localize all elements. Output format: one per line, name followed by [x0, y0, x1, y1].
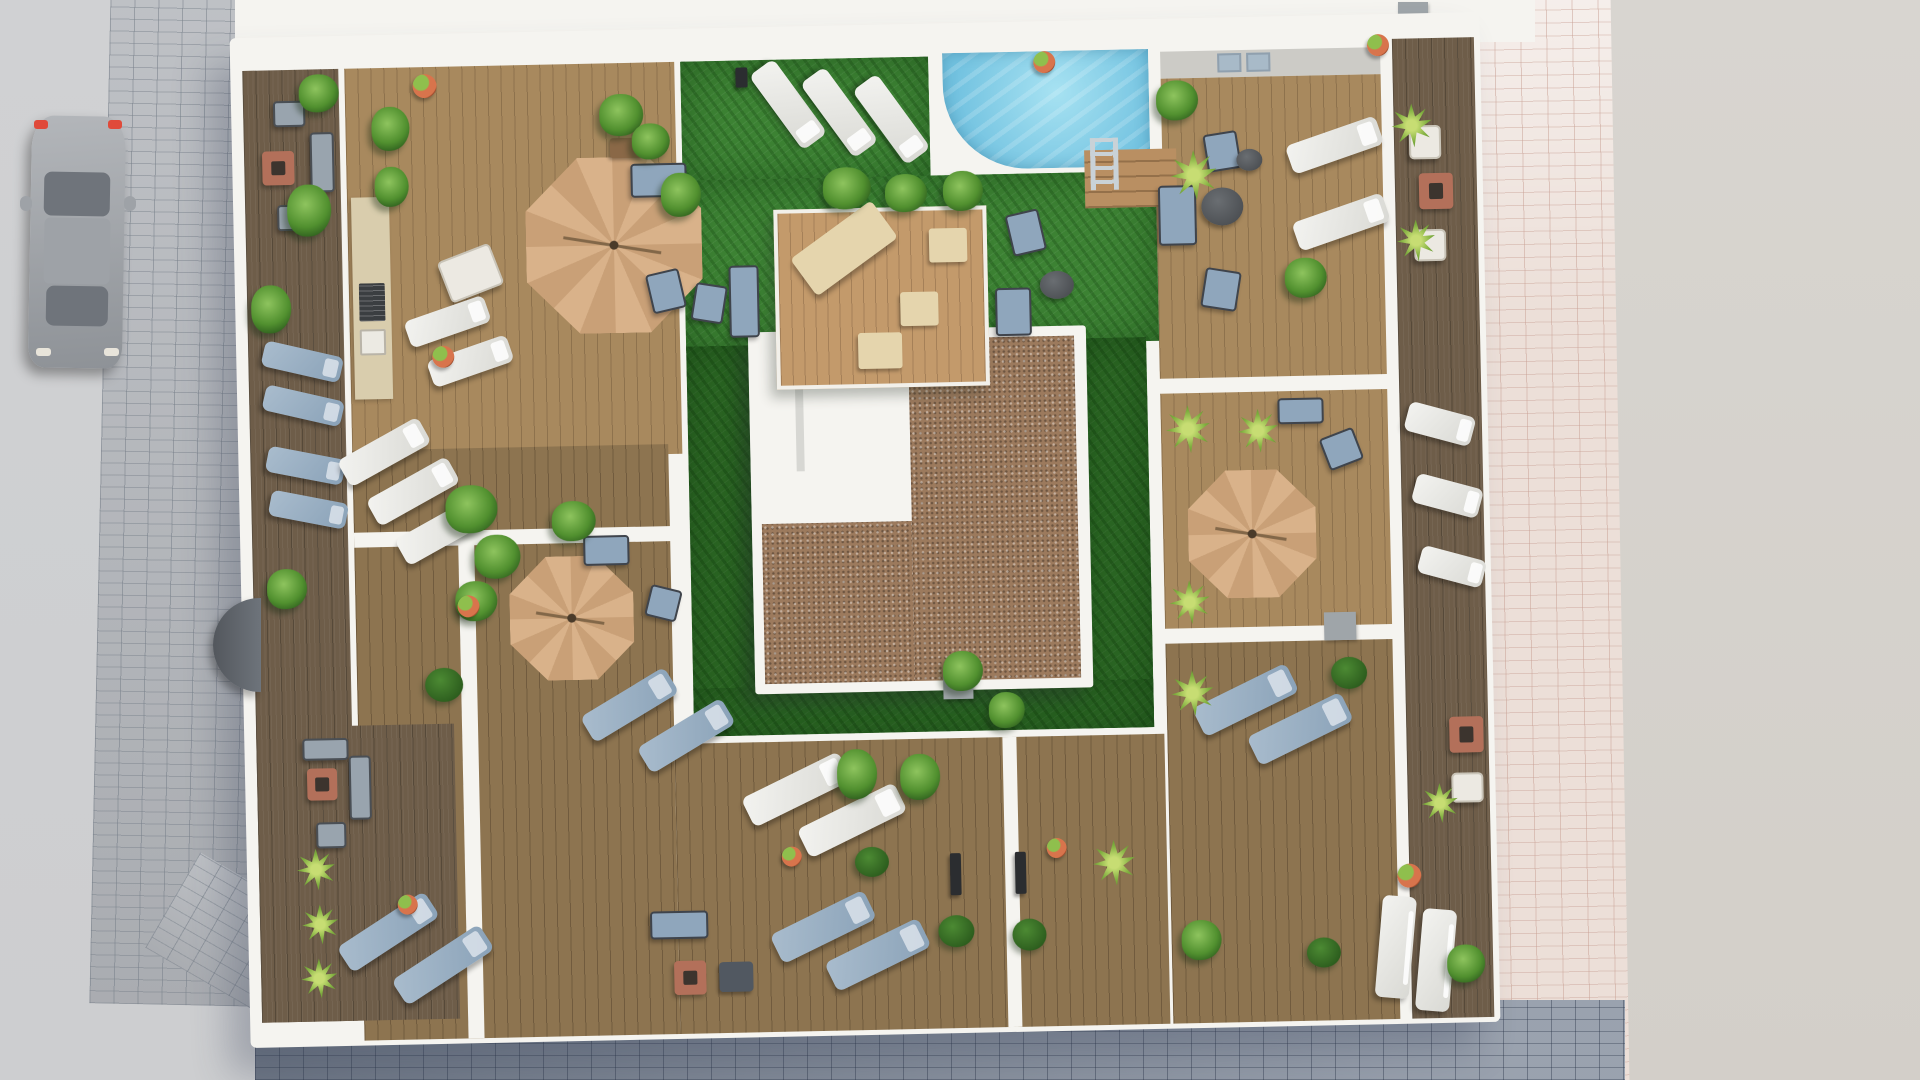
car-mirror	[20, 196, 32, 211]
chair-blue	[1202, 130, 1242, 173]
armchair-gray	[316, 822, 347, 849]
sofa-blue	[1158, 185, 1197, 246]
planter-pot	[1367, 34, 1389, 56]
car-headlight	[36, 348, 51, 356]
aerial-rooftop-render-scene	[0, 0, 1920, 1080]
car-rear-window	[44, 171, 111, 216]
car-roof	[43, 217, 110, 284]
fire-table	[1449, 716, 1484, 753]
sofa-blue	[1277, 397, 1324, 424]
patio-heater	[950, 853, 962, 895]
gray-mat	[1324, 612, 1357, 641]
core-gravel-roof-right	[908, 336, 1081, 681]
sofa-gray	[349, 755, 372, 819]
waste-bin	[735, 67, 747, 87]
sofa-blue	[650, 910, 709, 939]
chair-blue	[690, 282, 727, 324]
sofa-gray	[302, 738, 348, 761]
skylight-2	[1246, 52, 1270, 71]
sofa-gray	[310, 132, 335, 192]
fire-table	[307, 768, 338, 801]
deck-cushion	[929, 228, 968, 263]
deck-cushion	[900, 291, 939, 326]
counter-sink	[360, 329, 387, 356]
pool-ladder	[1090, 138, 1119, 191]
fire-table	[262, 151, 295, 186]
sofa-blue	[728, 265, 760, 338]
car-headlight	[104, 348, 119, 356]
sofa-blue	[583, 535, 630, 566]
chair-dark	[719, 961, 754, 992]
car-windshield	[46, 285, 109, 326]
building-rooftop	[230, 12, 1501, 1048]
patio-heater	[1015, 852, 1027, 894]
fire-table	[1419, 173, 1454, 210]
barbecue-grill	[359, 283, 386, 322]
car-mirror	[124, 196, 136, 211]
car-taillight	[34, 120, 48, 129]
fire-table	[674, 960, 707, 995]
deck-cushion	[858, 332, 903, 369]
sofa-blue	[995, 287, 1032, 336]
skylight-1	[1217, 53, 1241, 72]
car-taillight	[108, 120, 122, 129]
chair-blue	[1200, 267, 1242, 312]
pavement-right	[1595, 0, 1920, 1080]
core-gravel-roof-bottom	[762, 521, 915, 684]
lawn-arm-left	[686, 345, 756, 736]
